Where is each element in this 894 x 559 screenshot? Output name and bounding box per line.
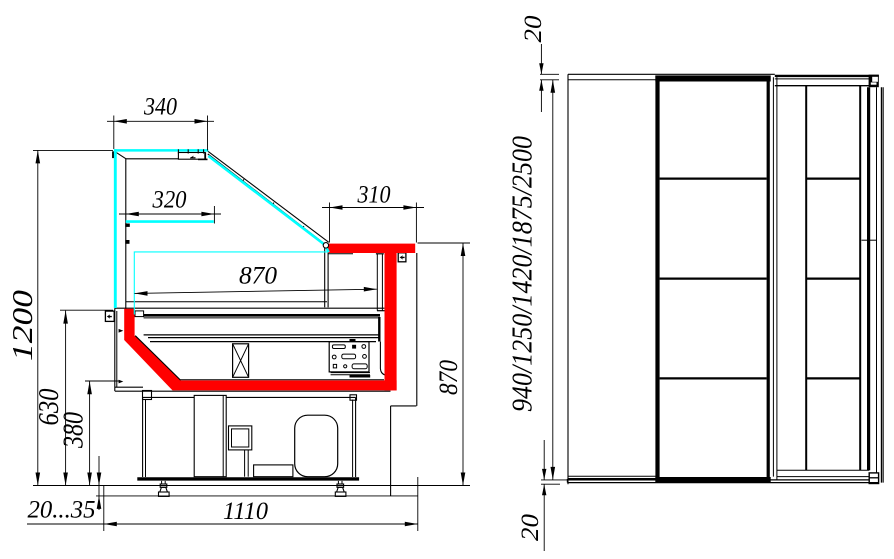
svg-text:870: 870: [434, 360, 463, 395]
svg-text:20: 20: [520, 15, 547, 43]
svg-text:1110: 1110: [223, 498, 268, 525]
svg-text:940/1250/1420/1875/2500: 940/1250/1420/1875/2500: [507, 136, 538, 412]
svg-text:310: 310: [357, 182, 391, 209]
svg-text:320: 320: [152, 187, 187, 214]
svg-text:380: 380: [58, 412, 89, 449]
svg-text:20: 20: [517, 513, 544, 541]
svg-text:870: 870: [239, 263, 278, 290]
svg-text:340: 340: [143, 94, 177, 121]
svg-text:20...35: 20...35: [28, 497, 96, 524]
svg-text:1200: 1200: [8, 290, 39, 361]
